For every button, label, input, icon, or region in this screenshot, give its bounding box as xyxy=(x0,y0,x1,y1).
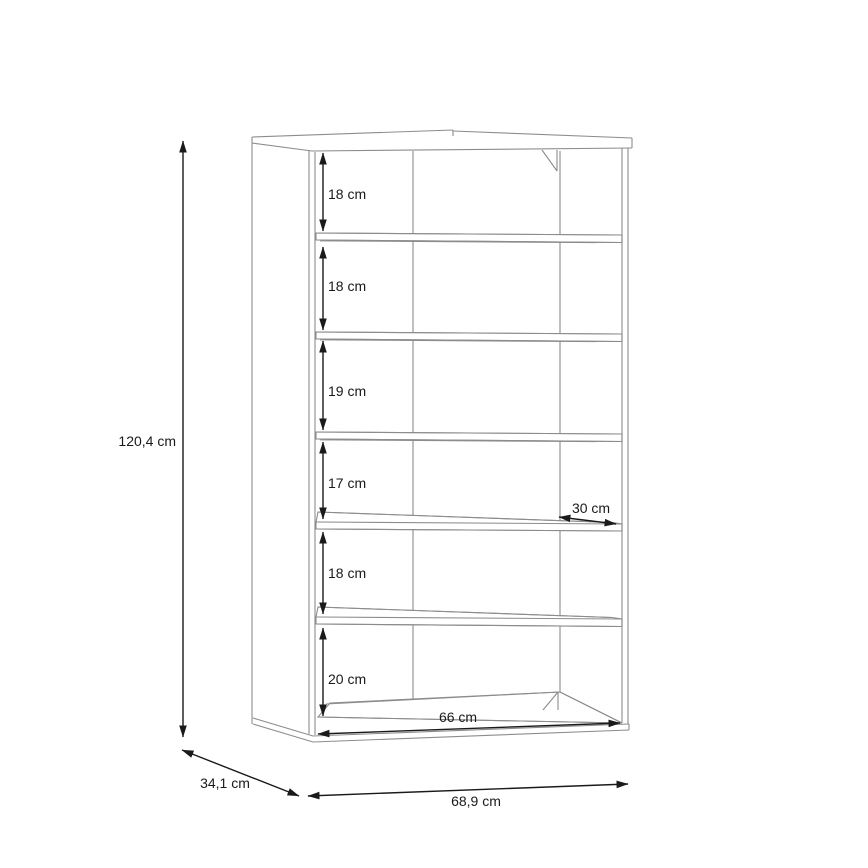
overall-width-label: 68,9 cm xyxy=(451,793,501,809)
shelf-5 xyxy=(316,607,622,627)
shelf-2 xyxy=(316,332,622,342)
shelf-1 xyxy=(316,233,622,243)
top-panel xyxy=(252,130,632,151)
cabinet-outline xyxy=(252,130,632,742)
compartment-3-label: 19 cm xyxy=(328,383,366,399)
shelf-depth-label: 30 cm xyxy=(572,500,610,516)
overall-height-label: 120,4 cm xyxy=(118,433,176,449)
compartment-5-label: 18 cm xyxy=(328,565,366,581)
overall-depth-label: 34,1 cm xyxy=(200,775,250,791)
shelf-cabinet-drawing: 120,4 cm 18 cm 18 cm 19 cm 17 cm 18 cm 2… xyxy=(0,0,868,868)
compartment-4-label: 17 cm xyxy=(328,475,366,491)
compartment-1-label: 18 cm xyxy=(328,186,366,202)
compartment-2-label: 18 cm xyxy=(328,278,366,294)
interior-width-label: 66 cm xyxy=(439,709,477,725)
dimension-drawing-canvas: 120,4 cm 18 cm 18 cm 19 cm 17 cm 18 cm 2… xyxy=(0,0,868,868)
shelf-3 xyxy=(316,432,622,442)
top-corner-bracket xyxy=(542,150,557,171)
compartment-6-label: 20 cm xyxy=(328,671,366,687)
